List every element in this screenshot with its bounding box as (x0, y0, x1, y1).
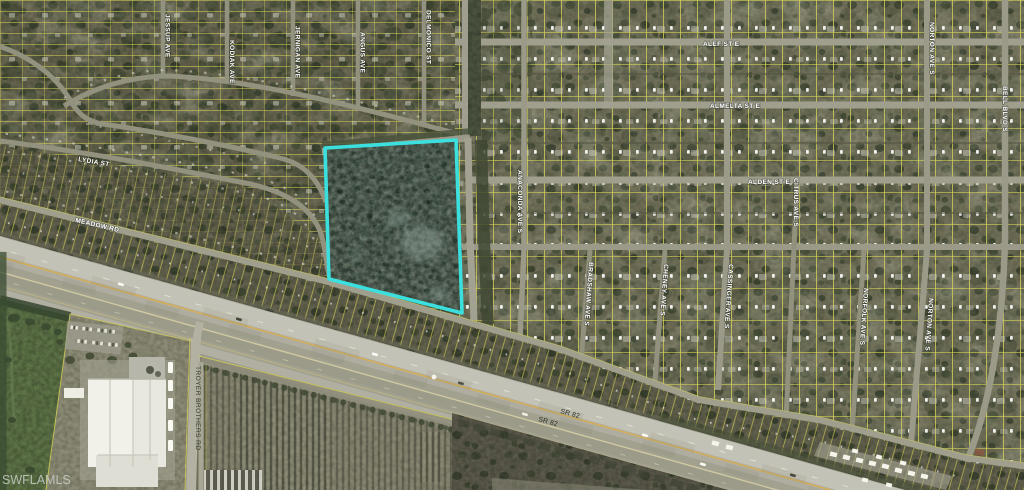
svg-text:JESSUP AVE: JESSUP AVE (164, 14, 171, 58)
svg-text:ANGUS AVE: ANGUS AVE (359, 32, 366, 73)
svg-text:ANACONDA AVE S: ANACONDA AVE S (516, 170, 523, 234)
svg-text:CITRUS AVE S: CITRUS AVE S (792, 178, 799, 227)
svg-text:SWFLAMLS: SWFLAMLS (2, 473, 71, 487)
svg-text:TROYER BROTHERS RD: TROYER BROTHERS RD (194, 366, 201, 451)
svg-text:NORTON AVE S: NORTON AVE S (928, 22, 935, 75)
svg-text:KODIAK AVE: KODIAK AVE (228, 40, 235, 84)
svg-text:ALDEN ST E: ALDEN ST E (748, 179, 791, 186)
svg-text:ALMELTA ST E: ALMELTA ST E (710, 103, 761, 110)
svg-text:BELL BLVD S: BELL BLVD S (1001, 86, 1008, 132)
svg-text:ALEF ST E: ALEF ST E (703, 41, 740, 48)
svg-text:JERNIGAN AVE: JERNIGAN AVE (294, 26, 301, 79)
svg-text:DELMONICO ST: DELMONICO ST (425, 10, 432, 64)
